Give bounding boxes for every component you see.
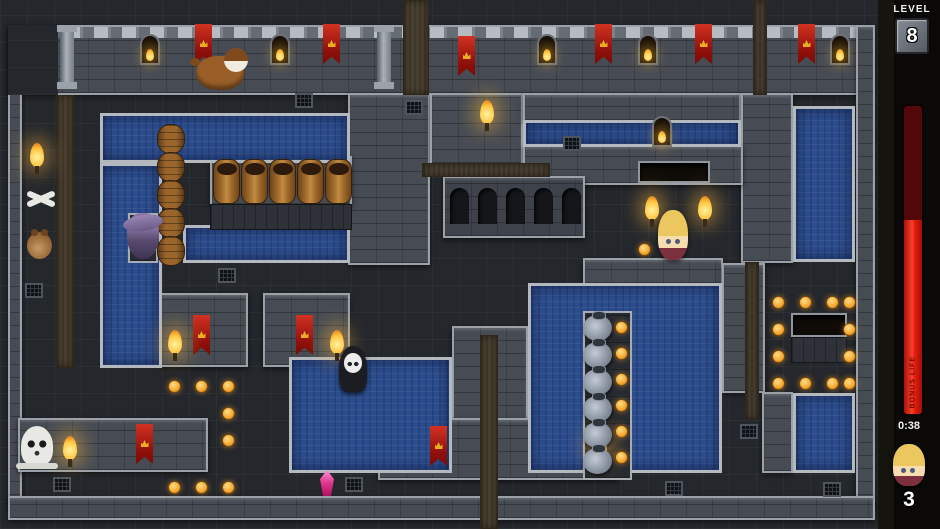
barrel-side-sprite [157,180,185,210]
coin-sprite [826,296,839,309]
window-niche-sprite [537,34,557,65]
hamster-sprite [27,232,52,259]
grate-sprite [665,481,683,496]
floor-patch-sprite [8,25,58,95]
coin-sprite [615,373,628,386]
barrel-side-sprite [157,236,185,266]
dirt-sprite [745,262,759,420]
coin-sprite [615,399,628,412]
level-label: LEVEL [890,4,934,15]
water-sprite [183,225,350,263]
coin-sprite [195,481,208,494]
dirt-sprite [753,0,767,95]
barrel-upright-sprite [297,159,324,204]
arch-sprite [506,188,525,224]
water-sprite [289,357,452,473]
coin-sprite [772,296,785,309]
torch-sprite [645,196,659,220]
barrel-upright-sprite [269,159,296,204]
water-sprite [100,113,350,163]
bonus-life-bar: BONUS LIFE [902,104,924,416]
window-niche-sprite [270,34,290,65]
coin-sprite [772,377,785,390]
arch-sprite [450,188,469,224]
window-niche-sprite [140,34,160,65]
level-box: LEVEL 8 [890,4,934,54]
pit-sprite [791,313,847,337]
wall-sprite [856,25,875,510]
grate-sprite [823,482,841,497]
coin-sprite [772,323,785,336]
grate-sprite [25,283,43,298]
coin-sprite [615,451,628,464]
window-niche-sprite [830,34,850,65]
coin-sprite [168,481,181,494]
arch-sprite [562,188,581,224]
coin-sprite [222,434,235,447]
coin-sprite [222,380,235,393]
dirt-sprite [56,95,74,368]
wall-sprite [523,93,741,122]
bones-sprite [24,186,58,212]
vase-sprite [583,448,612,474]
window-niche-sprite [638,34,658,65]
game-screen: LEVEL 8 BONUS LIFE 0:38 3 [0,0,940,529]
barrel-upright-sprite [213,159,240,204]
hud-sidebar: LEVEL 8 BONUS LIFE 0:38 3 [878,0,940,529]
bonus-life-bar-label: BONUS LIFE [910,356,917,408]
pit-sprite [638,161,710,183]
dirt-sprite [422,163,550,177]
coin-sprite [638,243,651,256]
coin-sprite [222,407,235,420]
wall-sprite [430,93,523,165]
coin-sprite [843,296,856,309]
reaper-sprite [339,346,367,392]
pillar-sprite [60,25,74,89]
dog-sprite [196,56,244,90]
lives-count: 3 [878,488,940,512]
grate-sprite [218,268,236,283]
water-sprite [793,106,855,262]
barrel-side-sprite [157,124,185,154]
lives-portrait [893,444,925,486]
coin-sprite [615,321,628,334]
coin-sprite [222,481,235,494]
torch-sprite [168,330,182,354]
timer-text: 0:38 [878,420,940,432]
window-niche-sprite [652,116,672,147]
dirt-sprite [480,335,498,529]
wall-sprite [762,392,793,473]
witch-sprite [127,213,159,259]
torch-sprite [63,436,77,460]
grate-sprite [345,477,363,492]
wall-sprite [348,93,430,265]
player-character [658,210,688,260]
torch-sprite [30,143,44,167]
game-map[interactable] [0,0,878,529]
torch-sprite [330,330,344,354]
arch-sprite [534,188,553,224]
coin-sprite [799,377,812,390]
arch-sprite [478,188,497,224]
coin-sprite [843,350,856,363]
coin-sprite [826,377,839,390]
torch-sprite [698,196,712,220]
coin-sprite [168,380,181,393]
coin-sprite [843,323,856,336]
grate-sprite [740,424,758,439]
coin-sprite [772,350,785,363]
ledge-sprite [210,204,352,230]
grate-sprite [563,136,581,151]
wall-sprite [583,258,723,285]
coin-sprite [615,425,628,438]
dirt-sprite [403,0,429,95]
barrel-upright-sprite [325,159,352,204]
skull-sprite [21,426,53,466]
ledge-sprite [791,337,847,363]
coin-sprite [799,296,812,309]
water-sprite [100,163,162,368]
grate-sprite [295,93,313,108]
coin-sprite [195,380,208,393]
pillar-sprite [377,25,391,89]
grate-sprite [53,477,71,492]
wall-sprite [741,93,793,263]
coin-sprite [615,347,628,360]
wall-sprite [8,25,870,95]
wall-sprite [8,496,875,520]
water-sprite [793,393,855,473]
barrel-upright-sprite [241,159,268,204]
coin-sprite [843,377,856,390]
water-sprite [523,120,741,147]
torch-sprite [480,100,494,124]
gem-sprite [320,470,334,496]
grate-sprite [405,100,423,115]
barrel-side-sprite [157,152,185,182]
level-indicator: 8 [895,18,929,54]
